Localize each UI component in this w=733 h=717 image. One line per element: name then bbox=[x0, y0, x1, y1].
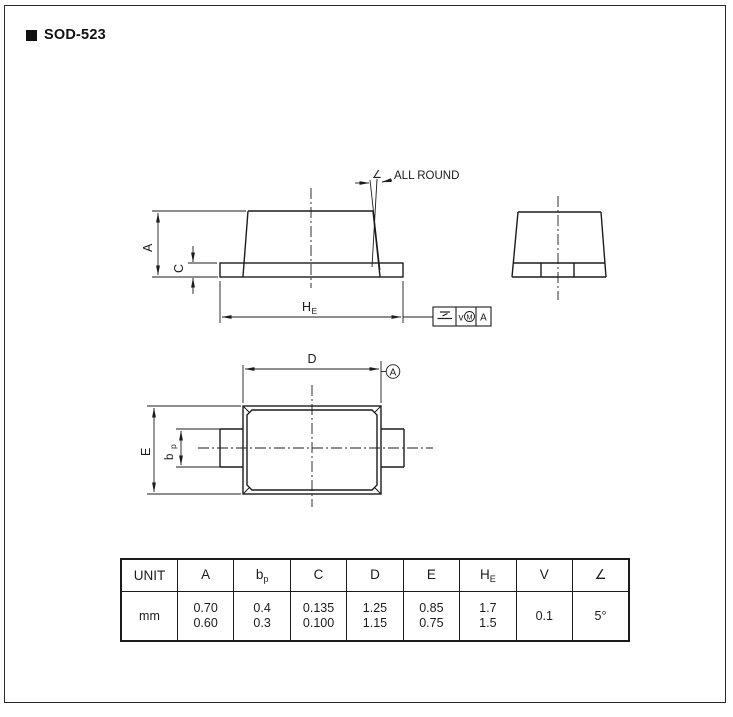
table-header-row: UNIT A bp C D E HE V ∠ bbox=[121, 559, 629, 592]
dim-HE-label-main: H bbox=[302, 300, 311, 314]
all-round-annotation-lines bbox=[355, 179, 392, 270]
value-A: 0.700.60 bbox=[177, 592, 233, 642]
value-C: 0.1350.100 bbox=[290, 592, 346, 642]
header-angle: ∠ bbox=[573, 559, 630, 592]
all-round-label: ALL ROUND bbox=[394, 170, 459, 182]
front-view-drawing: ∠ ALL ROUND A C H E bbox=[141, 169, 459, 323]
header-V: V bbox=[516, 559, 572, 592]
value-V: 0.1 bbox=[516, 592, 572, 642]
dim-E-label: E bbox=[139, 448, 153, 456]
frame-modifier-label: M bbox=[466, 312, 472, 321]
value-HE: 1.71.5 bbox=[460, 592, 516, 642]
dimension-table: UNIT A bp C D E HE V ∠ mm 0.700.60 0.40.… bbox=[120, 558, 630, 642]
header-D: D bbox=[347, 559, 403, 592]
dim-A-label: A bbox=[141, 243, 155, 252]
top-view-drawing: D A E b p bbox=[139, 352, 433, 507]
value-E: 0.850.75 bbox=[403, 592, 459, 642]
dim-E-lines bbox=[147, 406, 241, 494]
dim-D-lines bbox=[243, 361, 400, 403]
datum-a-label: A bbox=[390, 368, 397, 379]
header-unit: UNIT bbox=[121, 559, 177, 592]
unit-cell: mm bbox=[121, 592, 177, 642]
dim-A-lines bbox=[152, 211, 246, 277]
dim-D-label: D bbox=[307, 352, 316, 366]
frame-datum-label: A bbox=[480, 313, 487, 324]
angle-symbol: ∠ bbox=[372, 169, 382, 181]
value-D: 1.251.15 bbox=[347, 592, 403, 642]
dim-bp-label-sub: p bbox=[168, 444, 178, 449]
header-C: C bbox=[290, 559, 346, 592]
table-value-row: mm 0.700.60 0.40.3 0.1350.100 1.251.15 0… bbox=[121, 592, 629, 642]
feature-control-frame: v M A bbox=[433, 307, 491, 326]
value-angle: 5° bbox=[573, 592, 630, 642]
dim-HE-lines bbox=[220, 281, 433, 323]
header-bp: bp bbox=[234, 559, 290, 592]
frame-tolerance-label: v bbox=[459, 313, 464, 324]
dim-C-lines bbox=[188, 246, 217, 294]
dim-bp-label-main: b bbox=[164, 454, 176, 460]
dim-HE-label-sub: E bbox=[312, 306, 318, 316]
header-HE: HE bbox=[460, 559, 516, 592]
header-E: E bbox=[403, 559, 459, 592]
package-outline-page: SOD-523 bbox=[0, 0, 733, 717]
dim-C-label: C bbox=[172, 264, 186, 273]
header-A: A bbox=[177, 559, 233, 592]
coplanarity-symbol-icon bbox=[438, 312, 453, 319]
value-bp: 0.40.3 bbox=[234, 592, 290, 642]
end-view-drawing bbox=[512, 196, 606, 300]
